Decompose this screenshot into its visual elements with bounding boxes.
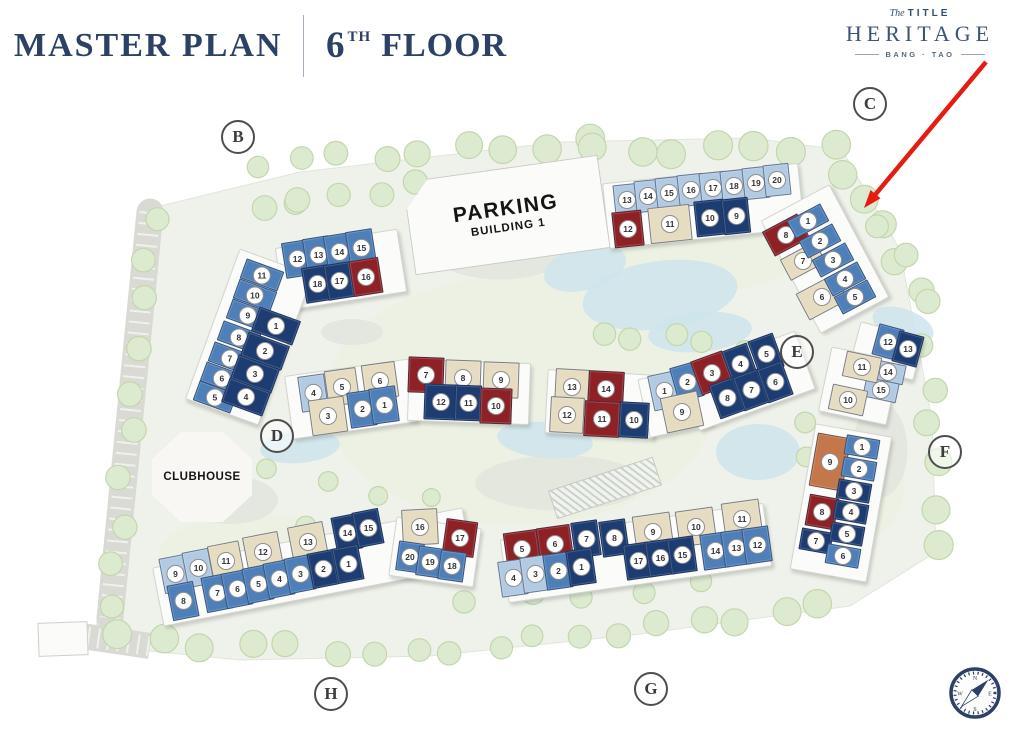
unit-number-badge: 2 — [256, 342, 274, 360]
unit-number-badge: 17 — [451, 529, 469, 547]
unit-number-badge: 4 — [237, 388, 255, 406]
unit-H-16[interactable]: 16 — [401, 508, 439, 546]
unit-number-badge: 16 — [651, 549, 669, 567]
unit-number-badge: 15 — [359, 519, 377, 537]
compass-w: W — [957, 692, 963, 698]
title-divider — [303, 15, 305, 77]
unit-number-badge: 17 — [629, 552, 647, 570]
compass-e: E — [988, 692, 992, 698]
unit-number-badge: 12 — [748, 536, 766, 554]
unit-number-badge: 2 — [850, 460, 868, 478]
unit-number-badge: 19 — [747, 174, 765, 192]
unit-C-12[interactable]: 12 — [611, 210, 645, 249]
compass-s: S — [973, 707, 976, 713]
unit-number-badge: 9 — [166, 565, 184, 583]
page-title: MASTER PLAN — [14, 27, 283, 65]
unit-number-badge: 5 — [846, 288, 864, 306]
unit-number-badge: 13 — [563, 378, 581, 396]
unit-B-16[interactable]: 16 — [348, 257, 383, 297]
unit-number-badge: 3 — [246, 365, 264, 383]
unit-number-badge: 3 — [526, 565, 544, 583]
unit-number-badge: 1 — [572, 558, 590, 576]
unit-number-badge: 18 — [308, 275, 326, 293]
unit-number-badge: 18 — [443, 557, 461, 575]
rule-right — [961, 54, 985, 55]
unit-number-badge: 3 — [291, 565, 309, 583]
clubhouse-label: CLUBHOUSE — [163, 471, 240, 483]
brand-line-top: TheTITLE — [835, 8, 1005, 19]
unit-number-badge: 1 — [853, 438, 871, 456]
unit-number-badge: 11 — [733, 510, 751, 528]
floor-ordinal: TH — [348, 29, 372, 46]
brand-location: BANG · TAO — [835, 50, 1005, 59]
unit-number-badge: 16 — [357, 268, 375, 286]
unit-number-badge: 11 — [853, 358, 871, 376]
unit-E-10[interactable]: 10 — [618, 401, 650, 439]
unit-number-badge: 10 — [487, 397, 505, 415]
unit-number-badge: 12 — [432, 393, 450, 411]
unit-number-badge: 11 — [661, 215, 679, 233]
unit-number-badge: 20 — [768, 171, 786, 189]
unit-number-badge: 14 — [879, 363, 897, 381]
unit-number-badge: 17 — [704, 179, 722, 197]
unit-D-1[interactable]: 1 — [368, 385, 400, 424]
rule-left — [855, 54, 879, 55]
unit-G-15[interactable]: 15 — [666, 535, 698, 574]
unit-number-badge: 3 — [319, 407, 337, 425]
unit-number-badge: 7 — [417, 366, 435, 384]
unit-number-badge: 14 — [639, 187, 657, 205]
unit-number-badge: 5 — [757, 345, 775, 363]
unit-number-badge: 2 — [549, 562, 567, 580]
building-marker-G[interactable]: G — [634, 672, 668, 706]
unit-number-badge: 13 — [899, 340, 917, 358]
unit-number-badge: 7 — [577, 530, 595, 548]
unit-number-badge: 15 — [872, 381, 890, 399]
brand-logo: TheTITLE HERITAGE BANG · TAO — [835, 8, 1005, 59]
unit-number-badge: 12 — [254, 543, 272, 561]
page-header: MASTER PLAN 6 TH FLOOR — [14, 14, 507, 78]
unit-number-badge: 2 — [353, 400, 371, 418]
unit-number-badge: 6 — [834, 547, 852, 565]
unit-number-badge: 10 — [189, 559, 207, 577]
unit-number-badge: 1 — [267, 317, 285, 335]
unit-D-11[interactable]: 11 — [454, 385, 482, 422]
unit-C-20[interactable]: 20 — [762, 163, 791, 198]
unit-number-badge: 1 — [799, 212, 817, 230]
unit-number-badge: 2 — [811, 232, 829, 250]
unit-number-badge: 1 — [339, 555, 357, 573]
unit-E-11[interactable]: 11 — [583, 400, 621, 438]
building-marker-E[interactable]: E — [780, 335, 814, 369]
unit-number-badge: 8 — [813, 503, 831, 521]
unit-number-badge: 12 — [558, 406, 576, 424]
unit-number-badge: 6 — [813, 288, 831, 306]
brand-title: TITLE — [908, 8, 951, 19]
unit-number-badge: 10 — [687, 518, 705, 536]
unit-number-badge: 5 — [838, 525, 856, 543]
unit-H-18[interactable]: 18 — [437, 549, 467, 582]
unit-G-12[interactable]: 12 — [741, 525, 773, 564]
compass-n: N — [973, 676, 978, 682]
building-marker-H[interactable]: H — [314, 677, 348, 711]
unit-number-badge: 5 — [513, 540, 531, 558]
unit-number-badge: 15 — [352, 239, 370, 257]
unit-D-3[interactable]: 3 — [308, 396, 349, 437]
unit-number-badge: 3 — [845, 482, 863, 500]
unit-number-badge: 7 — [807, 532, 825, 550]
floor-word: FLOOR — [381, 27, 507, 64]
unit-number-badge: 3 — [703, 364, 721, 382]
brand-prefix: The — [890, 8, 905, 19]
unit-number-badge: 4 — [504, 569, 522, 587]
unit-number-badge: 17 — [330, 272, 348, 290]
unit-number-badge: 10 — [839, 391, 857, 409]
unit-number-badge: 12 — [619, 220, 637, 238]
unit-number-badge: 9 — [492, 371, 510, 389]
unit-number-badge: 10 — [625, 411, 643, 429]
clubhouse: CLUBHOUSE — [152, 432, 252, 522]
unit-number-badge: 15 — [660, 184, 678, 202]
entrance-structure — [37, 621, 88, 657]
unit-E-9[interactable]: 9 — [660, 390, 705, 433]
floor-title: 6 TH FLOOR — [326, 27, 507, 64]
unit-number-badge: 2 — [678, 373, 696, 391]
unit-number-badge: 9 — [727, 207, 745, 225]
unit-number-badge: 9 — [821, 453, 839, 471]
building-marker-D[interactable]: D — [260, 419, 294, 453]
unit-number-badge: 13 — [618, 191, 636, 209]
unit-number-badge: 9 — [644, 523, 662, 541]
unit-number-badge: 4 — [842, 503, 860, 521]
unit-number-badge: 6 — [546, 535, 564, 553]
unit-number-badge: 19 — [421, 553, 439, 571]
unit-E-12[interactable]: 12 — [549, 396, 585, 434]
unit-number-badge: 11 — [253, 266, 271, 284]
unit-number-badge: 10 — [701, 209, 719, 227]
brand-name: HERITAGE — [835, 21, 1005, 47]
unit-number-badge: 6 — [766, 373, 784, 391]
master-plan-canvas: 1213141518171611109876512341314151617181… — [0, 0, 1021, 733]
unit-number-badge: 8 — [605, 529, 623, 547]
unit-C-11[interactable]: 11 — [647, 204, 693, 244]
unit-number-badge: 4 — [731, 355, 749, 373]
building-marker-B[interactable]: B — [221, 120, 255, 154]
unit-number-badge: 14 — [330, 243, 348, 261]
unit-G-1[interactable]: 1 — [565, 547, 597, 586]
unit-number-badge: 3 — [824, 251, 842, 269]
unit-number-badge: 16 — [682, 181, 700, 199]
unit-number-badge: 16 — [411, 518, 429, 536]
building-marker-C[interactable]: C — [853, 87, 887, 121]
unit-number-badge: 15 — [673, 546, 691, 564]
compass-icon: N E S W — [947, 665, 1003, 726]
unit-number-badge: 13 — [299, 533, 317, 551]
unit-number-badge: 8 — [718, 389, 736, 407]
unit-D-10[interactable]: 10 — [479, 387, 512, 424]
unit-number-badge: 14 — [597, 380, 615, 398]
unit-number-badge: 7 — [742, 381, 760, 399]
unit-number-badge: 2 — [314, 560, 332, 578]
unit-number-badge: 18 — [725, 177, 743, 195]
unit-number-badge: 10 — [246, 286, 264, 304]
unit-number-badge: 9 — [673, 403, 691, 421]
unit-C-9[interactable]: 9 — [721, 197, 752, 236]
floor-number: 6 — [326, 27, 346, 64]
brand-location-text: BANG · TAO — [885, 50, 954, 59]
unit-number-badge: 4 — [836, 270, 854, 288]
unit-number-badge: 11 — [217, 552, 235, 570]
unit-number-badge: 11 — [593, 410, 611, 428]
unit-number-badge: 11 — [459, 394, 477, 412]
unit-number-badge: 1 — [375, 396, 393, 414]
unit-number-badge: 8 — [174, 592, 192, 610]
building-marker-F[interactable]: F — [928, 435, 962, 469]
